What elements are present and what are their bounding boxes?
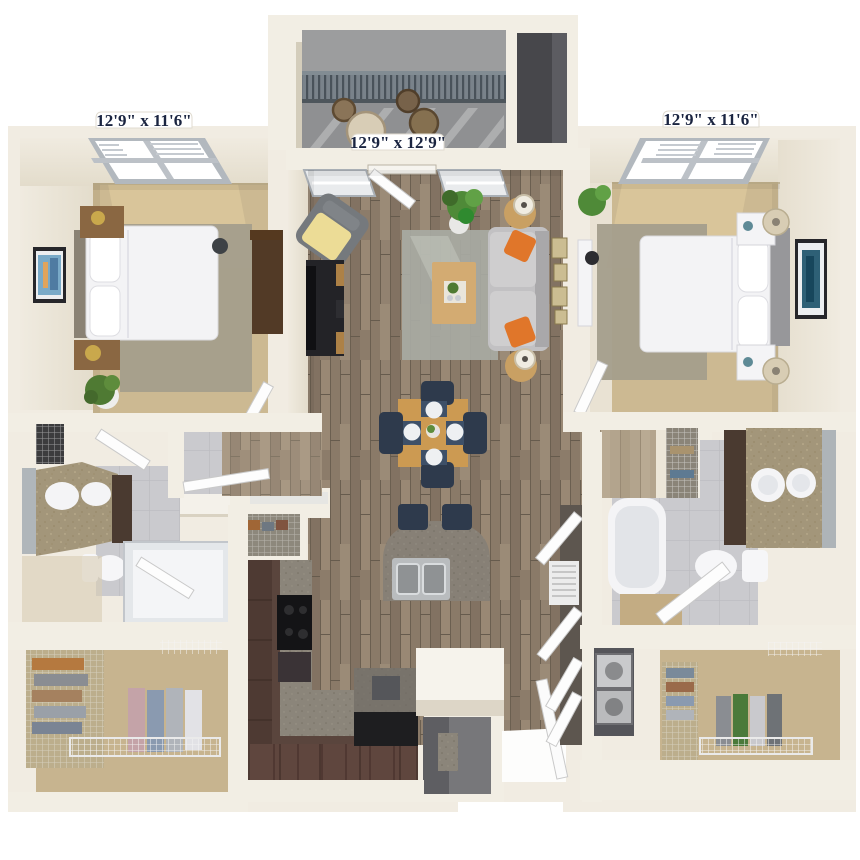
svg-text:12'9" x 11'6": 12'9" x 11'6" [96,111,191,130]
svg-text:12'9" x 11'6": 12'9" x 11'6" [663,110,758,129]
svg-text:12'9" x 12'9": 12'9" x 12'9" [350,133,446,152]
